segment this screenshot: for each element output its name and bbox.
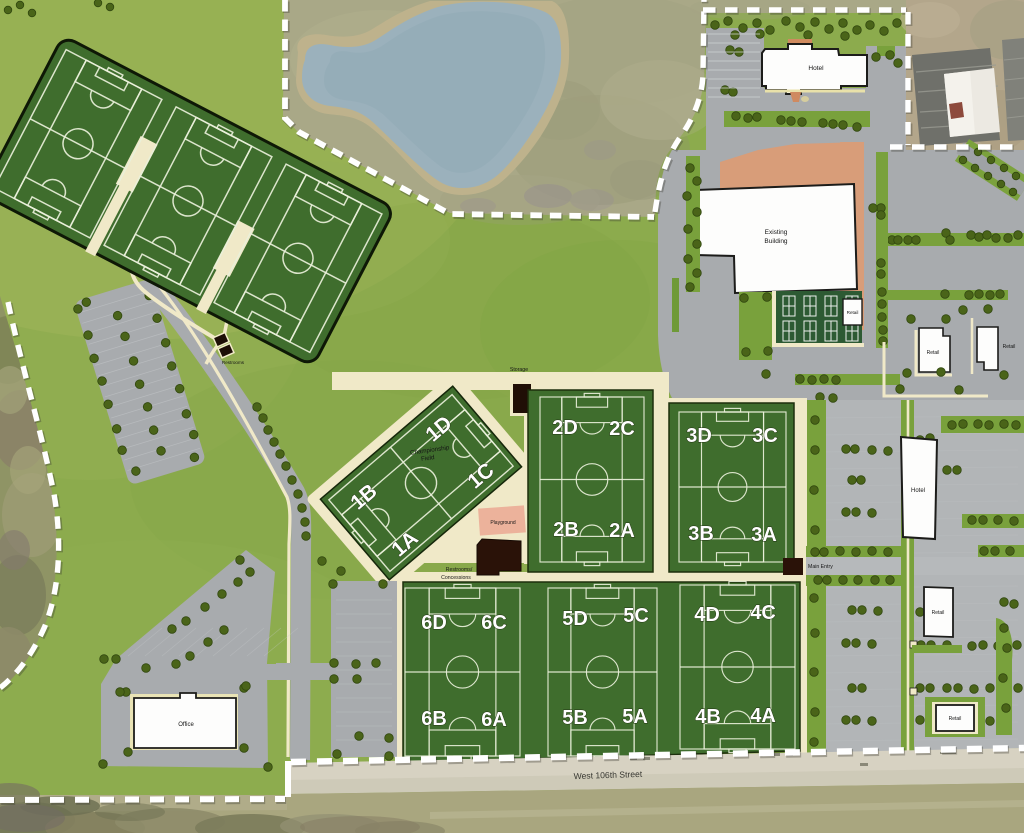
svg-text:Main Entry: Main Entry <box>808 564 833 570</box>
svg-text:Existing: Existing <box>765 229 788 236</box>
svg-text:5D: 5D <box>562 608 588 630</box>
svg-text:2D: 2D <box>552 417 578 439</box>
svg-text:Hotel: Hotel <box>911 488 925 494</box>
svg-text:4B: 4B <box>695 706 721 728</box>
svg-text:Retail: Retail <box>949 716 962 722</box>
svg-text:5C: 5C <box>623 605 649 627</box>
svg-text:4D: 4D <box>694 604 720 626</box>
svg-text:6D: 6D <box>421 612 447 634</box>
svg-text:Office: Office <box>178 722 194 728</box>
svg-text:6B: 6B <box>421 708 447 730</box>
svg-text:Retail: Retail <box>1003 344 1016 350</box>
svg-text:2B: 2B <box>553 519 579 541</box>
svg-text:Hotel: Hotel <box>808 65 824 72</box>
svg-text:5B: 5B <box>562 707 588 729</box>
svg-text:Retail: Retail <box>927 350 940 356</box>
svg-text:Building: Building <box>764 238 788 245</box>
svg-text:Retail: Retail <box>847 310 859 315</box>
svg-text:4A: 4A <box>750 705 776 727</box>
svg-text:Restrooms/: Restrooms/ <box>446 567 473 573</box>
svg-text:Restrooms: Restrooms <box>222 360 245 365</box>
svg-text:3B: 3B <box>688 523 714 545</box>
svg-text:3C: 3C <box>752 425 778 447</box>
svg-text:3A: 3A <box>751 524 777 546</box>
svg-text:3D: 3D <box>686 425 712 447</box>
svg-text:Retail: Retail <box>932 610 945 616</box>
svg-text:Concessions: Concessions <box>441 575 471 581</box>
svg-text:4C: 4C <box>750 602 776 624</box>
svg-text:5A: 5A <box>622 706 648 728</box>
svg-text:6C: 6C <box>481 612 507 634</box>
svg-text:6A: 6A <box>481 709 507 731</box>
svg-text:2C: 2C <box>609 418 635 440</box>
svg-text:Playground: Playground <box>490 520 516 526</box>
svg-text:Storage: Storage <box>510 367 528 373</box>
svg-text:2A: 2A <box>609 520 635 542</box>
